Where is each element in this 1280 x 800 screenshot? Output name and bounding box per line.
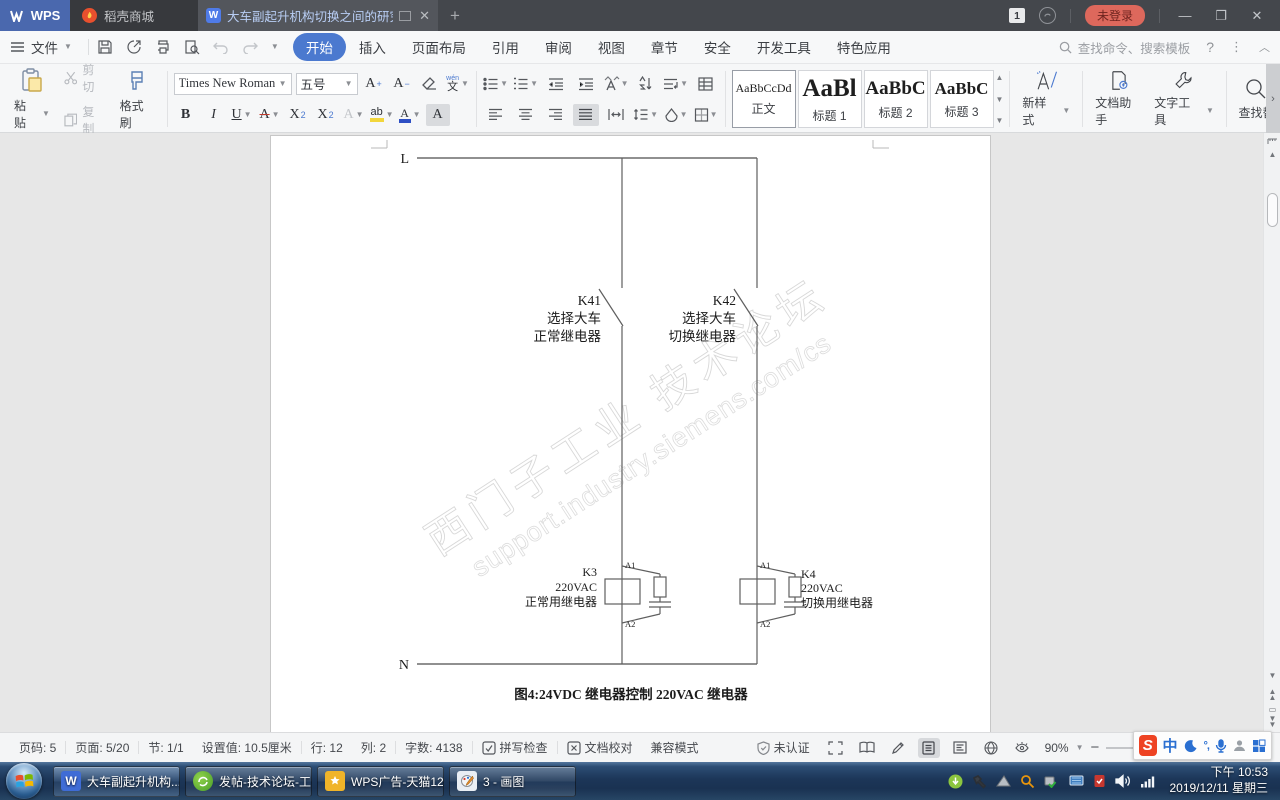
tray-volume-icon[interactable] [1115,774,1131,788]
k42-line2: 选择大车 [682,310,736,326]
wps-logo-icon [10,10,26,22]
highlight-color-button[interactable]: ab▼ [370,104,394,126]
ribbon-tab-page-layout[interactable]: 页面布局 [399,33,479,61]
figure-caption: 图4:24VDC 继电器控制 220VAC 继电器 [514,686,748,702]
copy-label: 复制 [82,103,105,137]
wps-label: WPS [31,8,61,23]
insert-table-button[interactable] [693,73,719,95]
taskbar-label: 大车副起升机构... [87,773,180,790]
doc-proofing-toggle[interactable]: 文档校对 [558,739,642,756]
chevron-down-icon: ▼ [1062,107,1070,115]
pinyin-guide-button[interactable]: wén文▼ [446,73,470,95]
a-glyph: A [393,76,403,92]
ribbon-tab-insert[interactable]: 插入 [346,33,399,61]
tray-graphics-icon[interactable] [996,775,1011,788]
paint-icon [457,771,477,791]
search-placeholder: 查找命令、搜索模板 [1078,38,1191,57]
spell-check-toggle[interactable]: 拼写检查 [473,739,557,756]
italic-button[interactable]: I [202,104,226,126]
font-name-select[interactable]: Times New Roman▼ [174,73,292,95]
chevron-down-icon: ▼ [680,80,688,88]
chevron-down-icon: ▼ [279,80,287,88]
tray-network-icon[interactable] [1069,775,1084,788]
k42-id: K42 [713,293,736,308]
title-bar: WPS 稻壳商城 W 大车副起升机构切换之间的研究 ✕ + 1 未登录 ― ❐ … [0,0,1280,31]
titlebar-divider [1070,9,1071,23]
paste-label: 粘贴 [14,97,37,131]
chevron-down-icon: ▼ [42,110,50,118]
watermark-line1: 西门子工业 技术论坛 [418,271,836,565]
ime-language-toggle[interactable]: 中 [1163,735,1178,756]
taskbar-label: 3 - 画图 [483,773,524,790]
collapse-ribbon-icon[interactable]: ︿ [1259,39,1270,55]
close-tab-icon[interactable]: ✕ [419,8,430,24]
file-menu[interactable]: 文件▼ [31,37,72,57]
text-tool-label: 文字工具 [1154,94,1201,128]
font-size-value: 五号 [301,74,326,93]
text-effects-button[interactable]: A▼ [342,104,366,126]
write-mode-button[interactable] [887,738,909,758]
watermark-line2: support.industry.siemens.com/cs [466,328,836,583]
text-tool-button[interactable]: 文字工具▼ [1148,68,1220,130]
styles-scroll-down-icon[interactable]: ▼ [996,95,1004,104]
sogou-logo-icon[interactable]: S [1139,735,1157,756]
k41-line2: 选择大车 [547,310,601,326]
group-divider [725,71,726,127]
microphone-icon[interactable] [1215,739,1227,753]
punctuation-toggle[interactable]: °, [1204,740,1209,752]
next-page-icon[interactable]: ▼▼ [1264,716,1280,728]
bold-button[interactable]: B [174,104,198,126]
doc-tab-label: 大车副起升机构切换之间的研究 [227,6,393,25]
previous-page-icon[interactable]: ▲▲ [1264,689,1280,701]
output-pdf-icon[interactable] [126,39,142,55]
k41-contact-blade [599,289,623,326]
justify-button[interactable] [573,104,599,126]
numbering-button[interactable]: ▼ [513,73,539,95]
k41-id: K41 [578,293,601,308]
chevron-down-icon: ▼ [500,80,508,88]
k41-line3: 正常继电器 [534,329,602,344]
taskbar-label: WPS广告-天猫12... [351,773,444,790]
style-heading1[interactable]: AaBl标题 1 [798,70,862,128]
distribute-button[interactable] [603,104,629,126]
margin-marks [371,140,889,148]
document-page[interactable]: 西门子工业 技术论坛 support.industry.siemens.com/… [270,135,991,732]
style-normal[interactable]: AaBbCcDd正文 [732,70,796,128]
web-layout-button[interactable] [980,738,1002,758]
close-window-button[interactable]: ✕ [1246,8,1268,24]
a-glyph: A [400,107,409,119]
minimize-button[interactable]: ― [1174,8,1196,23]
decrease-font-button[interactable]: A− [390,73,414,95]
clipboard-icon [20,68,44,94]
certification-status[interactable]: 未认证 [748,739,819,756]
style-heading2[interactable]: AaBbC标题 2 [864,70,928,128]
tab-document[interactable]: W 大车副起升机构切换之间的研究 ✕ [198,0,438,31]
spellcheck-icon [482,741,496,755]
file-menu-label: 文件 [31,37,58,57]
style-heading3[interactable]: AaBbC标题 3 [930,70,994,128]
status-setting-value[interactable]: 设置值: 10.5厘米 [193,739,301,756]
k4-line2: 220VAC [801,581,843,595]
font-color-swatch [399,119,411,123]
font-size-select[interactable]: 五号▼ [296,73,358,95]
k42-line3: 切换继电器 [669,329,737,344]
k4-a2-label: A2 [760,619,770,629]
scroll-up-icon[interactable]: ▲ [1264,150,1280,159]
find-replace-icon [1244,77,1268,101]
align-left-button[interactable] [483,104,509,126]
font-color-button[interactable]: A▼ [398,104,422,126]
restore-button[interactable]: ❐ [1210,8,1232,24]
copy-button[interactable]: 复制 [64,103,106,137]
clear-format-button[interactable] [418,73,442,95]
proofing-icon [567,741,581,755]
sub-2: 2 [329,110,334,120]
taskbar-button-wps-ad[interactable]: WPS广告-天猫12... [317,766,444,797]
cut-label: 剪切 [82,61,105,95]
format-painter-button[interactable]: 格式刷 [114,66,161,133]
status-section[interactable]: 节: 1/1 [139,739,192,756]
select-browse-object-icon[interactable]: ▭ [1264,705,1280,714]
new-style-icon [1033,70,1059,91]
underline-button[interactable]: U▼ [230,104,254,126]
group-divider [1226,71,1227,127]
character-scale-button[interactable]: ▼ [603,73,629,95]
chevron-down-icon: ▼ [244,111,252,119]
status-column[interactable]: 列: 2 [352,739,395,756]
copy-icon [64,113,78,127]
ribbon-tab-security[interactable]: 安全 [691,33,744,61]
taskbar-button-paint[interactable]: 3 - 画图 [449,766,576,797]
document-area: 西门子工业 技术论坛 support.industry.siemens.com/… [0,133,1280,732]
sup-2: 2 [301,110,306,120]
chevron-down-icon: ▼ [680,111,688,119]
ribbon-tab-home[interactable]: 开始 [293,33,346,61]
style-preview: AaBbCcDd [736,81,792,96]
clock-time: 下午 10:53 [1169,765,1268,781]
paste-button[interactable]: 粘贴▼ [8,66,56,133]
print-icon[interactable] [155,39,171,55]
highlight-swatch [370,118,384,122]
sort-button[interactable] [633,73,659,95]
shield-icon [757,741,770,755]
wps-home-button[interactable]: WPS [0,0,70,31]
shading-button[interactable]: ▼ [663,104,689,126]
strikethrough-button[interactable]: A▼ [258,104,282,126]
taskbar-label: 发帖-技术论坛-工... [219,773,312,790]
chevron-down-icon: ▼ [64,43,72,51]
cut-button[interactable]: 剪切 [64,61,106,95]
format-painter-icon [125,68,149,94]
outline-view-button[interactable] [949,738,971,758]
menu-bar: 文件▼ ▼ 开始 插入 页面布局 引用 审阅 视图 章节 安全 开发工具 特色应… [0,31,1280,64]
format-painter-label: 格式刷 [120,97,155,131]
paragraph-mark-button[interactable]: ▼ [663,73,689,95]
effect-glyph: A [344,107,354,123]
vertical-scrollbar[interactable]: ▲ ▼ ▲▲ ▭ ▼▼ [1263,133,1280,732]
windows-flag-icon [15,773,34,790]
new-style-label: 新样式 [1022,94,1057,128]
wps-app-icon: W [61,771,81,791]
style-preview: AaBl [802,75,856,103]
k3-resistor [654,577,666,597]
chevron-down-icon: ▼ [386,111,394,119]
tray-sogou-search-icon[interactable] [1020,774,1035,789]
shade-glyph: A [432,107,442,123]
l-label: L [400,152,409,167]
new-style-button[interactable]: 新样式▼ [1016,68,1076,130]
doc-assistant-icon [1107,70,1131,91]
ribbon-tab-section[interactable]: 章节 [638,33,691,61]
more-options-icon[interactable]: ⋮ [1230,39,1243,55]
style-preview: AaBbC [865,78,925,100]
status-bar: 页码: 5 页面: 5/20 节: 1/1 设置值: 10.5厘米 行: 12 … [0,732,1280,762]
x-glyph: X [317,107,327,123]
ribbon-tab-special-features[interactable]: 特色应用 [824,33,904,61]
chevron-down-icon[interactable]: ▼ [271,43,279,51]
style-name: 标题 2 [879,104,913,121]
ribbon-expand-strip[interactable]: › [1266,64,1280,133]
bullets-button[interactable]: ▼ [483,73,509,95]
chevron-down-icon: ▼ [413,111,421,119]
ribbon-toolbar: 粘贴▼ 剪切 复制 格式刷 Times New Roman▼ 五号▼ A+ A−… [0,64,1280,133]
menubar-divider [88,39,89,55]
redo-icon[interactable] [242,40,258,54]
chevron-down-icon: ▼ [345,80,353,88]
new-tab-button[interactable]: + [438,0,472,31]
char-shading-button[interactable]: A [426,104,450,126]
zoom-level[interactable]: 90% [1045,741,1069,755]
start-button[interactable] [6,763,42,799]
tray-usb-icon[interactable] [1044,774,1060,788]
doc-proofing-label: 文档校对 [585,739,633,756]
detach-window-icon[interactable] [399,11,411,21]
app-window: WPS 稻壳商城 W 大车副起升机构切换之间的研究 ✕ + 1 未登录 ― ❐ … [0,0,1280,800]
k3-line3: 正常用继电器 [525,595,597,609]
scissors-icon [64,71,78,85]
ribbon-tab-references[interactable]: 引用 [479,33,532,61]
styles-scroll-up-icon[interactable]: ▲ [996,73,1004,82]
ribbon-tab-view[interactable]: 视图 [585,33,638,61]
chevron-down-icon: ▼ [461,80,469,88]
doc-assistant-button[interactable]: 文档助手 [1089,68,1148,130]
toolbox-grid-icon[interactable] [1252,739,1266,753]
print-preview-icon[interactable] [184,39,200,55]
k3-line2: 220VAC [555,580,597,594]
k4-line3: 切换用继电器 [801,596,873,610]
chevron-down-icon: ▼ [530,80,538,88]
user-icon[interactable] [1233,739,1246,752]
status-page-number[interactable]: 页码: 5 [10,739,65,756]
certification-label: 未认证 [774,739,810,756]
u-glyph: U [232,107,242,123]
k4-id: K4 [801,567,816,581]
tray-tool-icon[interactable] [972,774,987,789]
k3-a2-label: A2 [625,619,635,629]
align-center-button[interactable] [513,104,539,126]
chevron-down-icon: ▼ [621,80,629,88]
minus-icon: − [404,79,409,89]
tray-signal-icon[interactable] [1140,775,1156,788]
wen-glyph: 文 [447,82,458,93]
taskbar-clock[interactable]: 下午 10:53 2019/12/11 星期三 [1169,765,1274,796]
command-search[interactable]: 查找命令、搜索模板 [1059,38,1191,57]
subscript-button[interactable]: X2 [314,104,338,126]
style-preview: AaBbC [935,79,989,99]
chevron-down-icon: ▼ [1206,107,1214,115]
eye-protect-button[interactable] [1011,738,1033,758]
ab-glyph: ab [370,107,382,118]
k4-a1-label: A1 [760,560,770,570]
doc-assistant-label: 文档助手 [1095,94,1142,128]
circuit-diagram: 西门子工业 技术论坛 support.industry.siemens.com/… [271,136,990,731]
zoom-out-button[interactable]: − [1091,739,1100,756]
strike-glyph: A [260,107,270,123]
member-center-icon[interactable] [1039,7,1056,24]
font-name-value: Times New Roman [179,76,276,91]
taskbar-button-browser[interactable]: 发帖-技术论坛-工... [185,766,312,797]
undo-icon[interactable] [213,40,229,54]
help-button[interactable]: ? [1206,39,1214,55]
status-line[interactable]: 行: 12 [302,739,352,756]
read-layout-button[interactable] [856,738,878,758]
scrollbar-thumb[interactable] [1267,193,1278,227]
save-icon[interactable] [97,39,113,55]
style-name: 正文 [752,100,776,117]
status-page-count[interactable]: 页面: 5/20 [66,739,138,756]
status-word-count[interactable]: 字数: 4138 [396,739,471,756]
window-manage-badge[interactable]: 1 [1009,8,1025,23]
chevron-down-icon: ▼ [710,111,718,119]
ime-toolbar: S 中 °, [1133,731,1272,760]
styles-gallery-expand-icon[interactable]: ▼ [996,116,1004,125]
eraser-icon [422,77,437,91]
shop-tab-label: 稻壳商城 [104,6,154,25]
borders-button[interactable]: ▼ [693,104,719,126]
moon-icon[interactable] [1184,739,1198,753]
x-glyph: X [289,107,299,123]
line-spacing-button[interactable]: ▼ [633,104,659,126]
group-divider [1009,71,1010,127]
increase-indent-button[interactable] [573,73,599,95]
tab-docer-mall[interactable]: 稻壳商城 [70,0,198,31]
clock-date: 2019/12/11 星期三 [1169,781,1268,797]
page-view-button[interactable] [918,738,940,758]
k3-id: K3 [582,565,597,579]
ribbon-tab-developer[interactable]: 开发工具 [744,33,824,61]
style-name: 标题 3 [945,103,979,120]
wps-doc-icon: W [206,8,221,23]
increase-font-button[interactable]: A+ [362,73,386,95]
tray-security-icon[interactable] [1093,774,1106,788]
a-glyph: A [365,76,375,92]
ticket-star-icon [325,771,345,791]
superscript-button[interactable]: X2 [286,104,310,126]
windows-taskbar: W 大车副起升机构... 发帖-技术论坛-工... WPS广告-天猫12... … [0,762,1280,800]
group-divider [1082,71,1083,127]
spell-check-label: 拼写检查 [500,739,548,756]
fullscreen-view-button[interactable] [825,738,847,758]
wrench-icon [1172,70,1196,91]
ruler-toggle-icon[interactable] [1264,136,1280,145]
scroll-down-icon[interactable]: ▼ [1264,671,1280,680]
chevron-down-icon: ▼ [356,111,364,119]
ribbon-tab-review[interactable]: 审阅 [532,33,585,61]
hamburger-icon[interactable] [10,41,25,53]
plus-icon: + [376,79,381,89]
tray-update-icon[interactable] [948,774,963,789]
k4-resistor [789,577,801,597]
k3-a1-label: A1 [625,560,635,570]
chevron-down-icon[interactable]: ▼ [1076,744,1084,752]
chevron-down-icon: ▼ [272,111,280,119]
compatibility-mode-label[interactable]: 兼容模式 [642,739,708,756]
search-icon [1059,41,1072,54]
style-name: 标题 1 [813,107,847,124]
align-right-button[interactable] [543,104,569,126]
taskbar-button-wps[interactable]: W 大车副起升机构... [53,766,180,797]
group-divider [476,71,477,127]
titlebar-divider [1159,9,1160,23]
login-button[interactable]: 未登录 [1085,5,1145,26]
decrease-indent-button[interactable] [543,73,569,95]
chevron-down-icon: ▼ [650,111,658,119]
group-divider [167,71,168,127]
browser-icon [193,771,213,791]
docer-icon [82,8,97,23]
n-label: N [399,658,409,673]
